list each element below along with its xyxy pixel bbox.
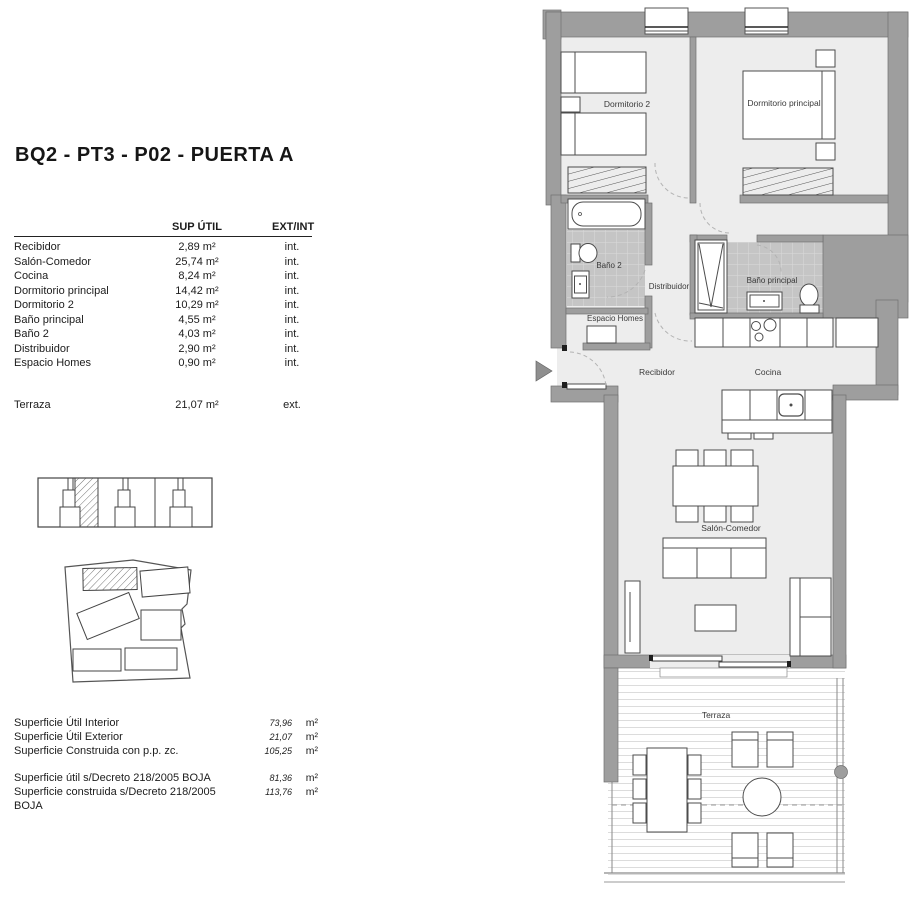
- room-name: Espacio Homes: [14, 356, 156, 371]
- summary-value: 113,76: [240, 785, 292, 799]
- summary-value: 105,25: [240, 744, 292, 758]
- stool-icon: [754, 433, 773, 439]
- chair-icon: [633, 779, 646, 799]
- tv-unit-icon: [625, 581, 640, 653]
- table-row: Baño 2 4,03 m² int.: [14, 327, 312, 342]
- room-name: Baño principal: [14, 313, 156, 328]
- room-name: Dormitorio principal: [14, 284, 156, 299]
- outdoor-table-icon: [647, 748, 687, 832]
- room-location: int.: [272, 240, 312, 255]
- room-location: ext.: [272, 398, 312, 413]
- room-label-bano-principal: Baño principal: [747, 276, 798, 285]
- room-area: 8,24 m²: [156, 269, 238, 284]
- chair-icon: [731, 450, 753, 466]
- block-elevation-diagram: [30, 470, 220, 536]
- lounge-chair-icon: [732, 732, 758, 767]
- chair-icon: [688, 779, 701, 799]
- summary-unit: m²: [292, 730, 318, 744]
- room-area: 4,55 m²: [156, 313, 238, 328]
- nightstand-icon: [561, 97, 580, 112]
- table-row: Salón-Comedor 25,74 m² int.: [14, 255, 312, 270]
- table-row: Espacio Homes 0,90 m² int.: [14, 356, 312, 371]
- table-header: SUP ÚTIL EXT/INT: [14, 221, 312, 234]
- table-row: Baño principal 4,55 m² int.: [14, 313, 312, 328]
- summary-unit: m²: [292, 716, 318, 730]
- round-table-icon: [743, 778, 781, 816]
- room-area: 21,07 m²: [156, 398, 238, 413]
- area-table: SUP ÚTIL EXT/INT Recibidor 2,89 m² int. …: [14, 221, 312, 412]
- room-label-cocina: Cocina: [755, 367, 782, 377]
- summary-unit: m²: [292, 785, 318, 799]
- lounge-chair-icon: [767, 833, 793, 867]
- room-label-salon-comedor: Salón-Comedor: [701, 523, 761, 533]
- table-row-terraza: Terraza 21,07 m² ext.: [14, 398, 312, 413]
- room-label-bano2: Baño 2: [596, 261, 622, 270]
- room-area: 0,90 m²: [156, 356, 238, 371]
- stool-icon: [728, 433, 751, 439]
- summary-value: 21,07: [240, 730, 292, 744]
- summary-unit: m²: [292, 744, 318, 758]
- summary-row: Superficie Útil Exterior 21,07 m²: [14, 730, 326, 744]
- chair-icon: [633, 755, 646, 775]
- summary-row: Superficie Construida con p.p. zc. 105,2…: [14, 744, 326, 758]
- room-area: 10,29 m²: [156, 298, 238, 313]
- page-title: BQ2 - PT3 - P02 - PUERTA A: [15, 144, 294, 167]
- room-name: Distribuidor: [14, 342, 156, 357]
- chair-icon: [731, 506, 753, 522]
- room-location: int.: [272, 269, 312, 284]
- table-row: Dormitorio 2 10,29 m² int.: [14, 298, 312, 313]
- room-location: int.: [272, 356, 312, 371]
- dormitorio2-furniture: [561, 52, 646, 193]
- room-name: Cocina: [14, 269, 156, 284]
- room-location: int.: [272, 284, 312, 299]
- room-area: 2,89 m²: [156, 240, 238, 255]
- room-label-terraza: Terraza: [702, 710, 731, 720]
- lounge-chair-icon: [767, 732, 793, 767]
- room-name: Dormitorio 2: [14, 298, 156, 313]
- room-name: Salón-Comedor: [14, 255, 156, 270]
- room-label-recibidor: Recibidor: [639, 367, 675, 377]
- dining-table-icon: [673, 466, 758, 506]
- room-area: 25,74 m²: [156, 255, 238, 270]
- table-row: Distribuidor 2,90 m² int.: [14, 342, 312, 357]
- chair-icon: [633, 803, 646, 823]
- floor-plan: Dormitorio 2 Dormitorio principal Baño 2: [530, 0, 921, 907]
- room-name: Terraza: [14, 398, 156, 413]
- entry-arrow-icon: [536, 361, 552, 381]
- nightstand-icon: [816, 143, 835, 160]
- summary-label: Superficie útil s/Decreto 218/2005 BOJA: [14, 771, 240, 785]
- highlighted-building: [83, 568, 137, 591]
- room-location: int.: [272, 298, 312, 313]
- chair-icon: [676, 506, 698, 522]
- room-area: 14,42 m²: [156, 284, 238, 299]
- nightstand-icon: [816, 50, 835, 67]
- room-label-dormitorio-principal: Dormitorio principal: [747, 98, 820, 108]
- dormitorio-principal-furniture: [743, 50, 835, 195]
- kitchen-counter-icon: [695, 318, 833, 347]
- chair-icon: [704, 450, 726, 466]
- room-location: int.: [272, 327, 312, 342]
- bed-icon: [561, 113, 646, 155]
- site-plan-diagram: [55, 552, 200, 692]
- table-rule: [14, 236, 312, 237]
- fridge-icon: [836, 318, 878, 347]
- chair-icon: [688, 803, 701, 823]
- sofa-icon: [663, 538, 766, 578]
- summary-row: Superficie construida s/Decreto 218/2005…: [14, 785, 326, 799]
- room-name: Recibidor: [14, 240, 156, 255]
- chair-icon: [688, 755, 701, 775]
- surface-summary: Superficie Útil Interior 73,96 m² Superf…: [14, 716, 326, 799]
- table-row: Recibidor 2,89 m² int.: [14, 240, 312, 255]
- room-location: int.: [272, 342, 312, 357]
- shower-icon: [695, 240, 727, 313]
- room-location: int.: [272, 313, 312, 328]
- col-header-ext-int: EXT/INT: [272, 221, 312, 233]
- summary-label: Superficie Útil Interior: [14, 716, 240, 730]
- entry-door-leaf: [567, 384, 606, 389]
- bathtub-icon: [568, 199, 645, 229]
- sliding-door-icon: [649, 655, 791, 677]
- summary-row: Superficie útil s/Decreto 218/2005 BOJA …: [14, 771, 326, 785]
- wardrobe-icon: [743, 168, 833, 195]
- room-area: 4,03 m²: [156, 327, 238, 342]
- room-label-dormitorio2: Dormitorio 2: [604, 99, 651, 109]
- table-row: Dormitorio principal 14,42 m² int.: [14, 284, 312, 299]
- room-location: int.: [272, 255, 312, 270]
- summary-label: Superficie Útil Exterior: [14, 730, 240, 744]
- summary-row: Superficie Útil Interior 73,96 m²: [14, 716, 326, 730]
- espacio-homes-shelf: [587, 326, 616, 343]
- wardrobe-icon: [568, 167, 646, 193]
- summary-unit: m²: [292, 771, 318, 785]
- coffee-table-icon: [695, 605, 736, 631]
- chair-icon: [704, 506, 726, 522]
- summary-label: Superficie Construida con p.p. zc.: [14, 744, 240, 758]
- bed-icon: [561, 52, 646, 93]
- col-header-sup-util: SUP ÚTIL: [156, 221, 238, 233]
- summary-value: 81,36: [240, 771, 292, 785]
- toilet-icon: [800, 284, 818, 306]
- table-row: Cocina 8,24 m² int.: [14, 269, 312, 284]
- summary-value: 73,96: [240, 716, 292, 730]
- floorplan-sheet: BQ2 - PT3 - P02 - PUERTA A SUP ÚTIL EXT/…: [0, 0, 921, 907]
- room-area: 2,90 m²: [156, 342, 238, 357]
- room-name: Baño 2: [14, 327, 156, 342]
- lounge-chair-icon: [732, 833, 758, 867]
- room-label-espacio-homes: Espacio Homes: [587, 314, 643, 323]
- terrace-column: [835, 766, 848, 779]
- chair-icon: [676, 450, 698, 466]
- room-label-distribuidor: Distribuidor: [649, 282, 690, 291]
- summary-label: Superficie construida s/Decreto 218/2005…: [14, 785, 240, 813]
